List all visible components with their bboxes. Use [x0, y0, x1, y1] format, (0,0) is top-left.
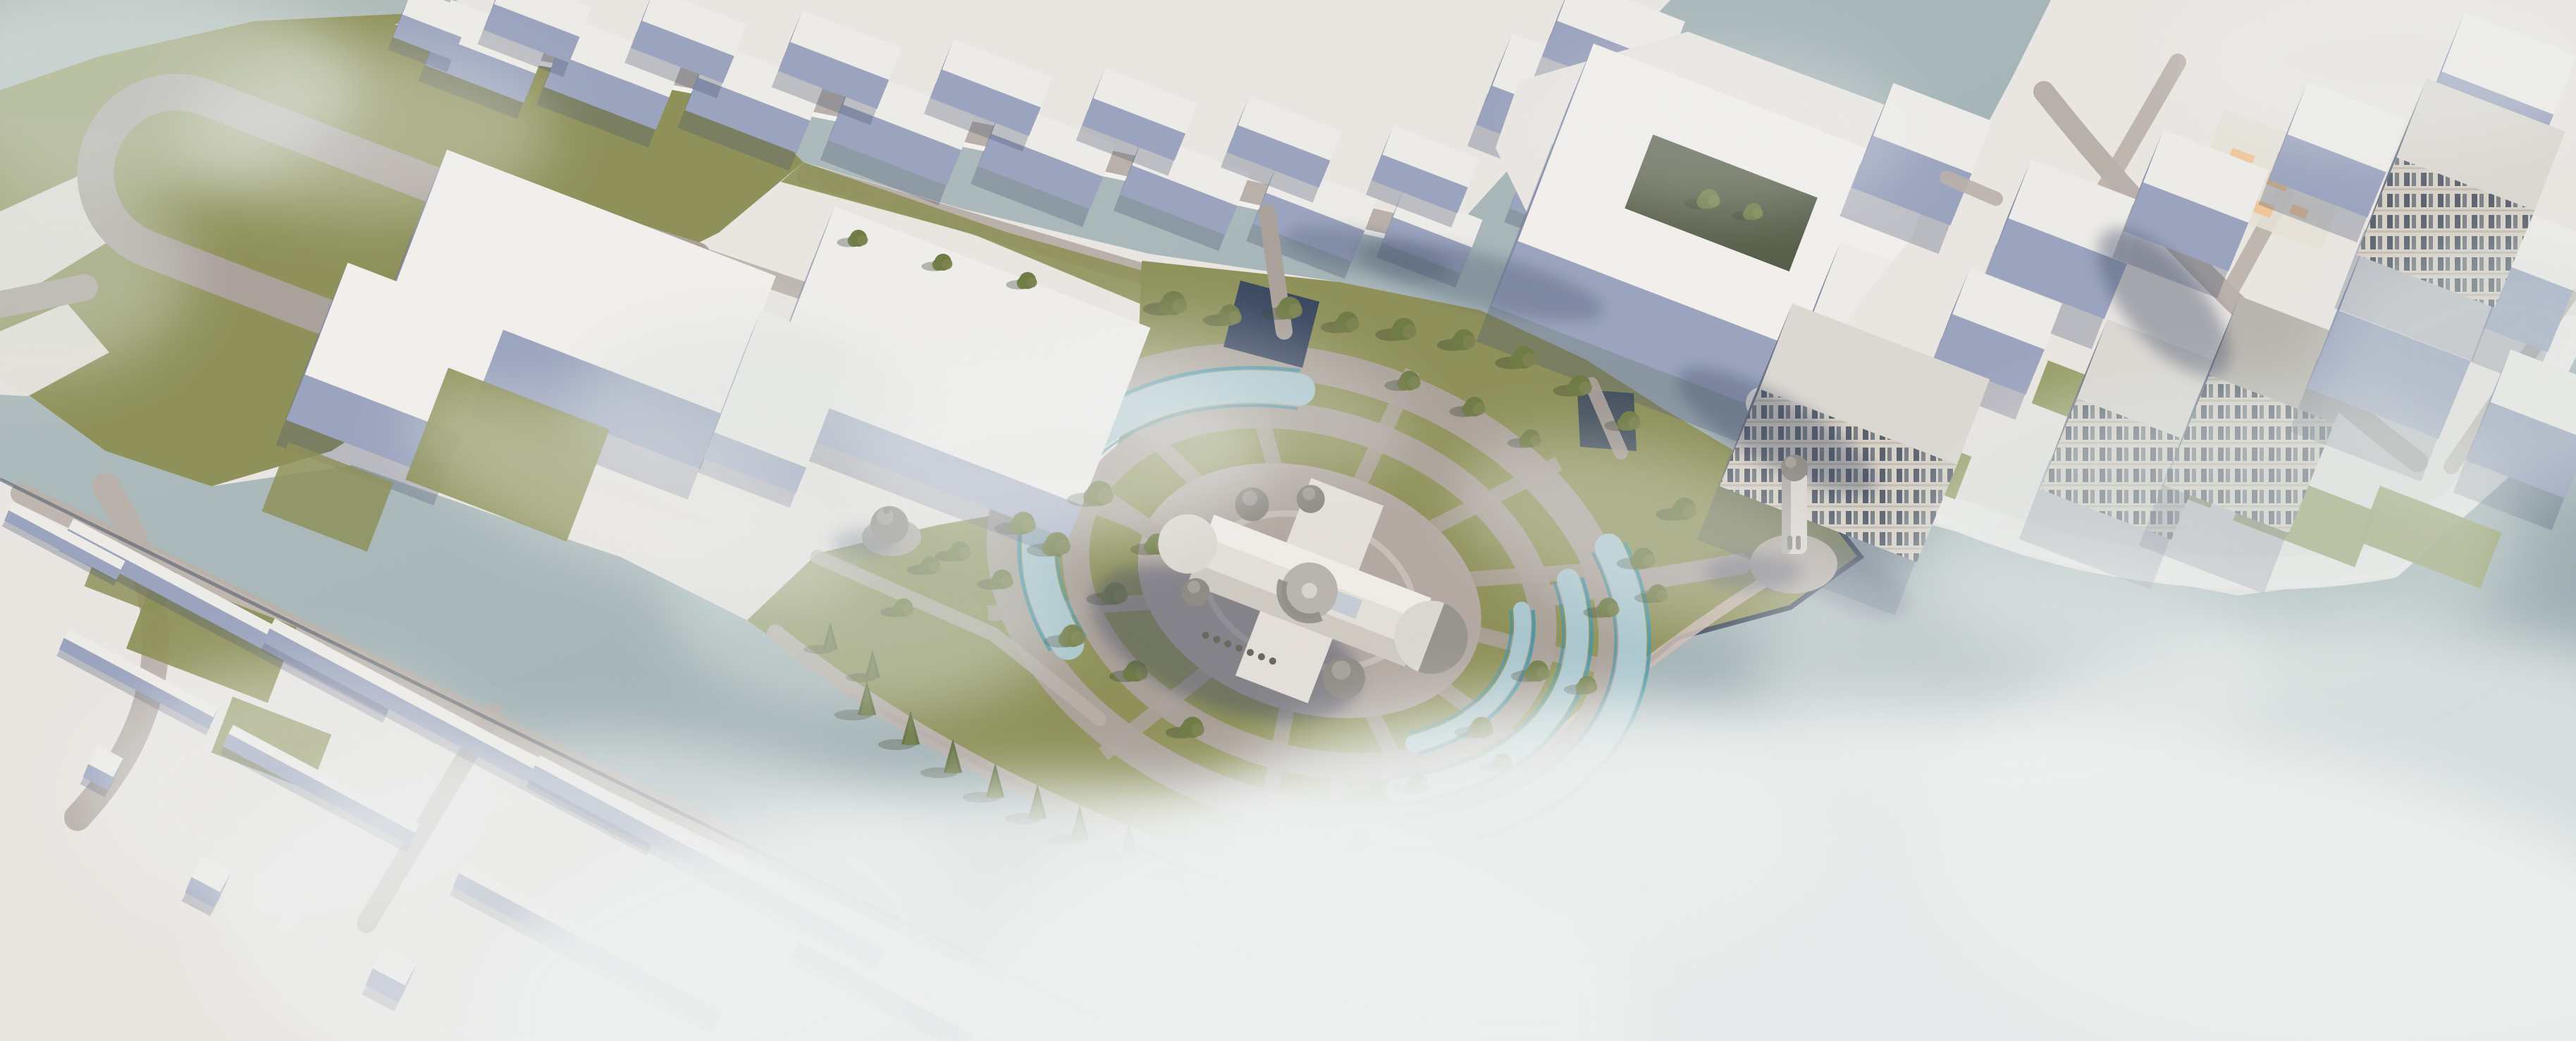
scene-svg	[0, 0, 2576, 1041]
rendering-canvas	[0, 0, 2576, 1041]
film-grain	[0, 0, 2576, 1041]
